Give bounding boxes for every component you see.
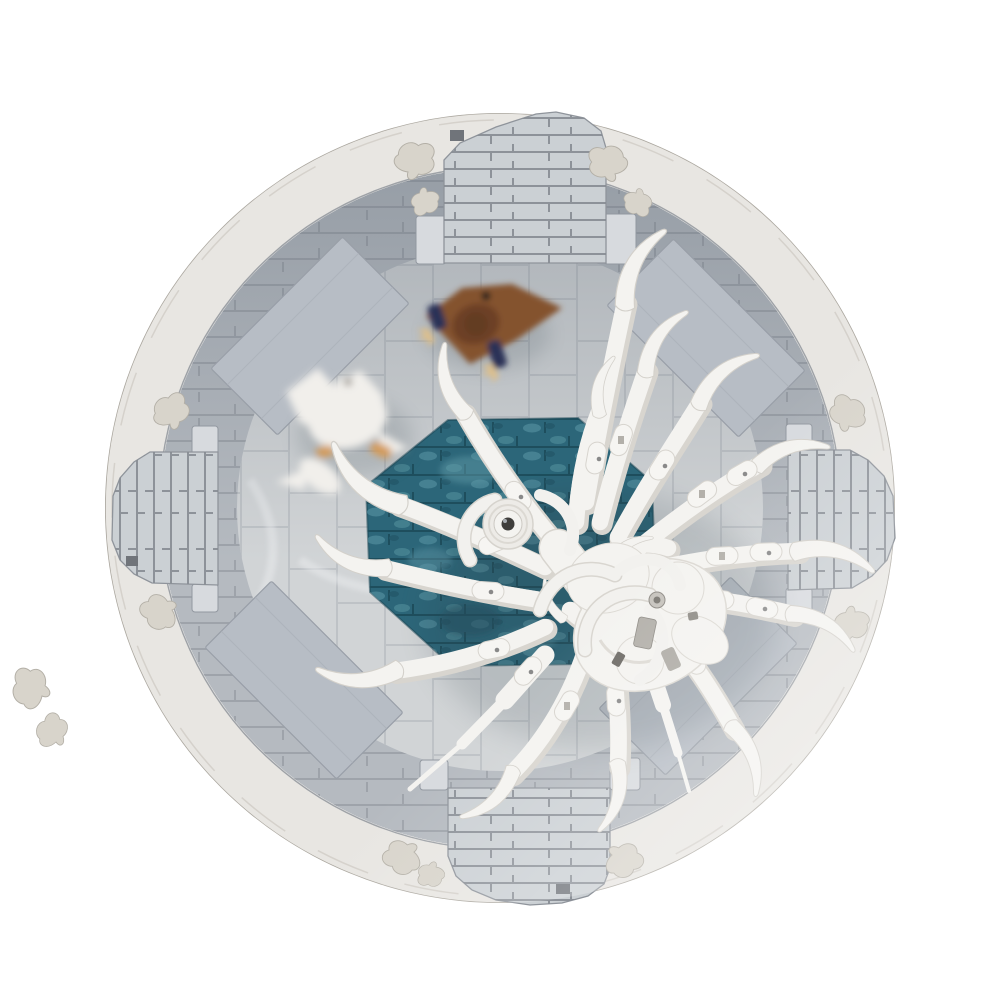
eagle-body-core	[464, 312, 488, 336]
spider-eye	[483, 499, 533, 549]
product-render	[0, 0, 1000, 1000]
eagle-head-dot	[482, 292, 491, 301]
goose-eye	[345, 379, 352, 386]
goose-head	[336, 376, 356, 396]
gate-slot	[126, 556, 138, 566]
gate-slot	[556, 884, 570, 894]
spider-pupil	[502, 518, 515, 531]
gate-slot	[450, 130, 464, 141]
